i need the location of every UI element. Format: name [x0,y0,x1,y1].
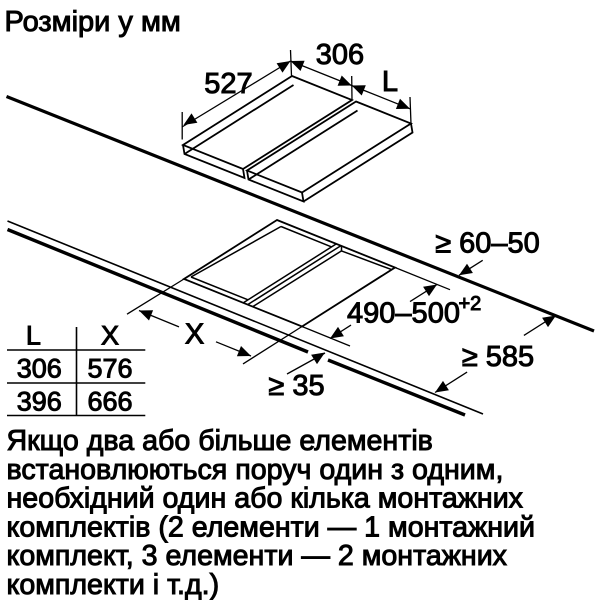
svg-text:комплектів (2 елементи — 1 мон: комплектів (2 елементи — 1 монтажний [7,511,535,543]
svg-text:≥ 35: ≥ 35 [268,370,324,402]
svg-text:Розміри у мм: Розміри у мм [5,6,181,38]
svg-text:L: L [382,66,398,98]
svg-text:X: X [101,321,119,351]
svg-text:≥ 585: ≥ 585 [462,341,534,373]
svg-text:≥ 60–50: ≥ 60–50 [435,228,540,260]
svg-text:306: 306 [17,354,62,384]
svg-text:+2: +2 [459,293,482,315]
svg-text:396: 396 [17,387,62,417]
svg-text:L: L [26,321,41,351]
svg-text:666: 666 [87,387,132,417]
svg-text:490–500: 490–500 [347,298,460,330]
svg-text:X: X [185,319,204,351]
svg-text:комплекти і т.д.): комплекти і т.д.) [7,569,220,600]
svg-text:Якщо два або більше елементів: Якщо два або більше елементів [7,425,433,457]
svg-text:576: 576 [87,354,132,384]
svg-text:527: 527 [204,68,252,100]
svg-text:необхідний один або кілька мон: необхідний один або кілька монтажних [7,483,523,515]
svg-text:встановлюються поруч один з од: встановлюються поруч один з одним, [7,454,504,486]
svg-text:комплект, 3 елементи — 2 монта: комплект, 3 елементи — 2 монтажних [7,540,507,572]
svg-text:306: 306 [316,39,364,71]
